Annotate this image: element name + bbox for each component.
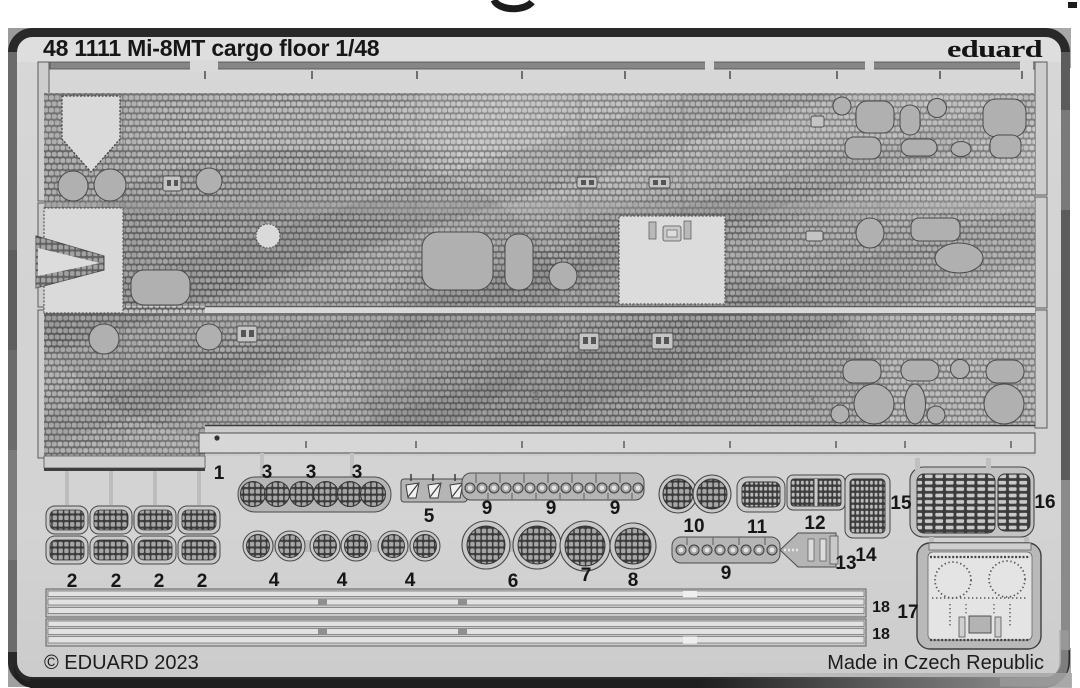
svg-text:© EDUARD 2023: © EDUARD 2023 [44, 652, 199, 674]
svg-text:2: 2 [154, 571, 165, 592]
svg-text:14: 14 [855, 545, 877, 566]
svg-text:9: 9 [482, 498, 493, 519]
svg-text:9: 9 [546, 498, 557, 519]
svg-text:16: 16 [1034, 492, 1055, 513]
svg-text:17: 17 [897, 602, 918, 623]
svg-text:15: 15 [890, 493, 912, 514]
svg-text:3: 3 [262, 462, 273, 483]
svg-text:18: 18 [872, 599, 890, 616]
svg-text:12: 12 [804, 513, 825, 534]
svg-text:2: 2 [67, 571, 78, 592]
svg-text:4: 4 [337, 570, 348, 591]
svg-text:13: 13 [835, 553, 856, 574]
svg-text:11: 11 [747, 517, 768, 538]
svg-text:7: 7 [581, 565, 592, 586]
svg-text:8: 8 [628, 570, 639, 591]
svg-text:6: 6 [508, 571, 519, 592]
svg-text:Made in Czech Republic: Made in Czech Republic [827, 652, 1044, 674]
svg-text:48 1111 Mi-8MT cargo floor 1/4: 48 1111 Mi-8MT cargo floor 1/48 [43, 35, 380, 61]
svg-text:3: 3 [533, 389, 540, 403]
svg-text:5: 5 [424, 506, 435, 527]
svg-text:1: 1 [214, 463, 225, 484]
svg-text:eduard: eduard [947, 37, 1043, 63]
svg-text:9: 9 [610, 498, 621, 519]
svg-text:3: 3 [352, 462, 363, 483]
svg-text:4: 4 [405, 570, 416, 591]
svg-text:10: 10 [683, 516, 704, 537]
svg-text:2: 2 [111, 571, 122, 592]
svg-text:2: 2 [197, 571, 208, 592]
svg-text:4: 4 [269, 570, 280, 591]
svg-text:18: 18 [872, 626, 890, 643]
svg-text:3: 3 [113, 393, 120, 407]
svg-text:3: 3 [306, 462, 317, 483]
svg-text:3: 3 [809, 393, 816, 407]
svg-text:9: 9 [721, 563, 732, 584]
